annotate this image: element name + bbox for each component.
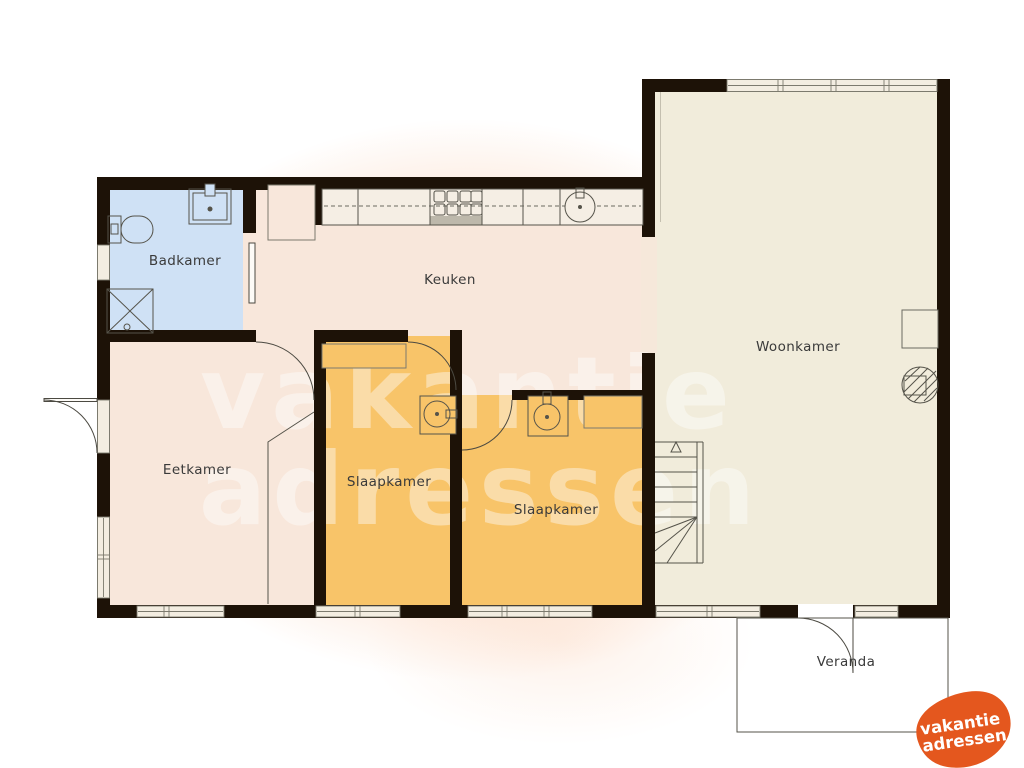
- veranda-outline: [737, 618, 948, 732]
- bedroom2-shelf: [584, 396, 642, 428]
- hob-base: [430, 216, 482, 225]
- basin-drain: [208, 207, 213, 212]
- wall-bedroom1-left: [314, 330, 326, 605]
- basin-drain: [435, 412, 439, 416]
- label-slaapkamer2: Slaapkamer: [514, 502, 598, 518]
- livingroom-wall-cabinet: [902, 310, 938, 348]
- bedroom2-washbasin-icon: [528, 392, 568, 436]
- wall-bedroom2-right: [642, 353, 655, 605]
- kitchen-cupboard: [268, 185, 315, 240]
- sink-drain: [578, 205, 582, 209]
- wall-bathroom-bottom: [97, 330, 256, 342]
- label-veranda: Veranda: [817, 654, 876, 670]
- entrance-threshold: [98, 400, 110, 453]
- vakantieadressen-logo: vakantie adressen: [912, 686, 1017, 768]
- wall-bathroom-right: [243, 177, 256, 233]
- bathroom-door-leaf: [249, 243, 255, 303]
- wall-bedroom1-top: [314, 330, 408, 342]
- wall-livingroom-left-upper: [642, 79, 655, 190]
- window-bathroom: [98, 245, 110, 280]
- watermark-line2: adressen: [199, 431, 761, 548]
- kitchen-counter: [322, 188, 643, 225]
- label-keuken: Keuken: [424, 272, 476, 288]
- wall-kitchen-livingroom-stub: [642, 190, 655, 237]
- label-woonkamer: Woonkamer: [756, 339, 840, 355]
- label-slaapkamer1: Slaapkamer: [347, 474, 431, 490]
- basin-drain: [545, 415, 549, 419]
- wall-bedrooms-shared: [450, 330, 462, 605]
- wall-top-main: [97, 177, 655, 190]
- label-eetkamer: Eetkamer: [163, 462, 231, 478]
- bedroom1-closet: [322, 344, 406, 368]
- label-badkamer: Badkamer: [149, 253, 221, 269]
- wall-right: [937, 79, 950, 618]
- bedroom1-washbasin-icon: [420, 396, 457, 434]
- veranda-door-gap: [798, 604, 853, 619]
- floorplan-drawing: vakantie adressen: [0, 0, 1024, 768]
- entrance-door-arc: [44, 400, 97, 453]
- basin-tap: [205, 184, 215, 196]
- entrance-door-leaf: [44, 399, 97, 402]
- floorplan-page: vakantie adressen: [0, 0, 1024, 768]
